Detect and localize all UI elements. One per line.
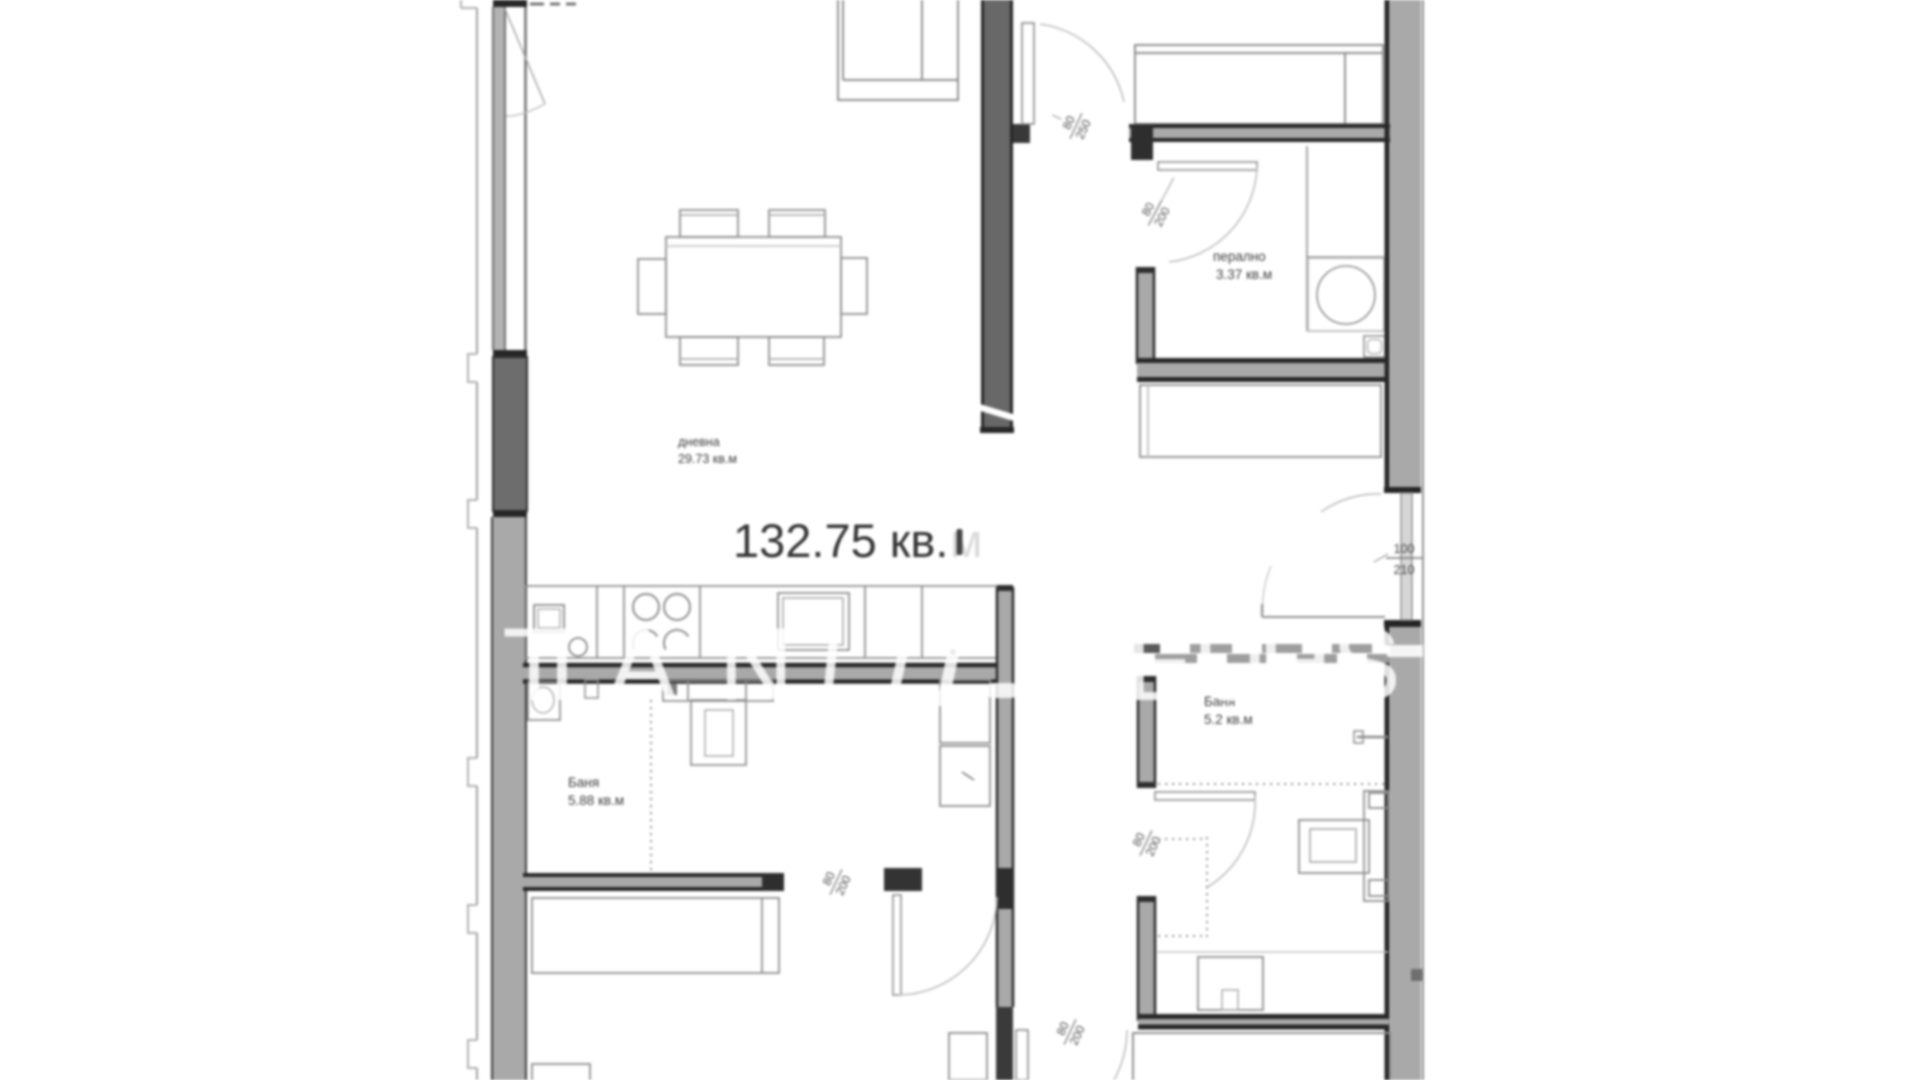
svg-text:3.37 кв.м: 3.37 кв.м <box>1216 267 1272 282</box>
svg-text:100: 100 <box>1394 542 1415 556</box>
svg-text:29.73 кв.м: 29.73 кв.м <box>678 452 737 466</box>
svg-text:P: P <box>1055 607 1124 723</box>
svg-text:S: S <box>1331 607 1400 723</box>
svg-text:Баня: Баня <box>568 775 599 790</box>
svg-text:I: I <box>548 607 577 723</box>
svg-text:210: 210 <box>1394 563 1415 577</box>
svg-text:A: A <box>607 607 677 723</box>
svg-text:5.88 кв.м: 5.88 кв.м <box>568 793 624 808</box>
svg-text:U: U <box>1192 607 1267 723</box>
svg-text:м: м <box>950 514 982 567</box>
svg-text:132.75 кв.: 132.75 кв. <box>733 514 948 567</box>
svg-text:дневна: дневна <box>678 435 720 449</box>
svg-text:N: N <box>718 607 793 723</box>
svg-text:перално: перално <box>1213 249 1266 264</box>
svg-text:H: H <box>1257 607 1332 723</box>
svg-text:E: E <box>1125 607 1194 723</box>
